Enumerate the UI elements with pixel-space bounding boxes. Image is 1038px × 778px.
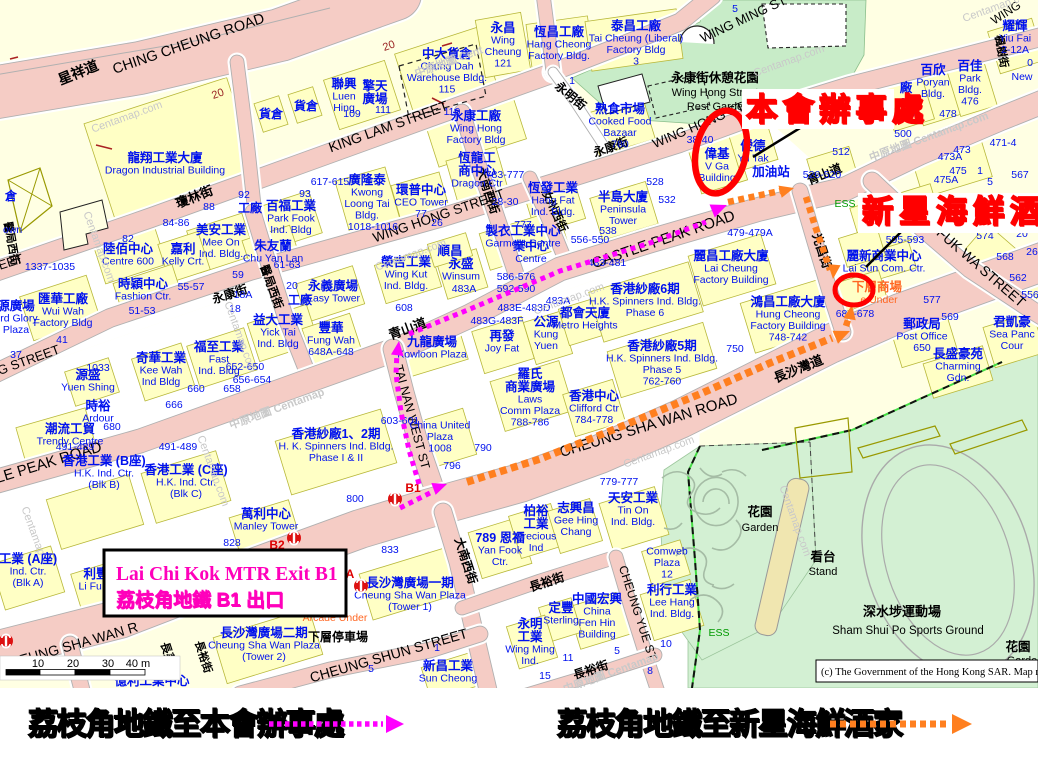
svg-text:H.K. Ind. Ctr.: H.K. Ind. Ctr. (156, 476, 216, 488)
svg-text:3: 3 (633, 55, 639, 67)
svg-text:109: 109 (343, 108, 361, 120)
svg-text:568: 568 (996, 251, 1014, 263)
svg-text:Plaza: Plaza (654, 557, 680, 569)
svg-text:(Blk C): (Blk C) (170, 488, 202, 500)
svg-text:(Blk B): (Blk B) (88, 479, 120, 491)
svg-text:Charming: Charming (935, 360, 981, 372)
svg-text:Ind Bldg: Ind Bldg (142, 376, 181, 388)
svg-text:828: 828 (223, 537, 241, 549)
svg-text:26: 26 (1026, 246, 1038, 258)
svg-text:工業: 工業 (517, 629, 543, 644)
svg-text:商業廣場: 商業廣場 (505, 379, 556, 394)
svg-text:志興昌: 志興昌 (557, 500, 595, 515)
svg-text:Cheung Sha Wan Plaza: Cheung Sha Wan Plaza (208, 639, 320, 651)
svg-text:工業 (A座): 工業 (A座) (0, 551, 57, 566)
svg-text:奇華工業: 奇華工業 (136, 350, 187, 365)
svg-text:朱友蘭: 朱友蘭 (254, 238, 292, 253)
svg-text:(Tower 1): (Tower 1) (388, 601, 432, 613)
svg-text:1033: 1033 (86, 362, 110, 374)
svg-text:Poryan: Poryan (916, 76, 949, 88)
svg-text:15: 15 (539, 670, 551, 682)
svg-text:777: 777 (514, 219, 532, 231)
svg-text:577: 577 (923, 294, 941, 306)
svg-text:512: 512 (832, 146, 850, 158)
svg-text:潮流工貿: 潮流工貿 (45, 421, 96, 436)
svg-text:Cheung Sha Wan Plaza: Cheung Sha Wan Plaza (354, 589, 466, 601)
svg-text:Fung Wah: Fung Wah (307, 334, 355, 346)
svg-text:再發: 再發 (489, 328, 515, 343)
svg-text:看台: 看台 (810, 549, 835, 564)
svg-text:貨倉: 貨倉 (294, 98, 319, 113)
svg-text:時裕: 時裕 (85, 398, 111, 413)
svg-text:473A: 473A (938, 151, 963, 163)
svg-text:H.K. Ind. Ctr.: H.K. Ind. Ctr. (74, 467, 134, 479)
svg-text:586-576: 586-576 (497, 271, 536, 283)
svg-text:貨倉: 貨倉 (259, 106, 284, 121)
svg-text:Wui Wah: Wui Wah (42, 305, 84, 317)
svg-text:Lai Chi Kok MTR Exit B1: Lai Chi Kok MTR Exit B1 (116, 564, 338, 585)
svg-text:483G-483F: 483G-483F (470, 315, 523, 327)
svg-text:Garden: Garden (742, 522, 779, 534)
svg-text:41: 41 (56, 334, 68, 346)
svg-text:Cheung: Cheung (485, 46, 522, 58)
svg-text:Ind. Bldg.: Ind. Bldg. (199, 248, 243, 260)
svg-text:鴻昌工廠大廈: 鴻昌工廠大廈 (750, 294, 826, 309)
svg-text:Sun Cheong: Sun Cheong (419, 672, 478, 684)
svg-text:深水埗運動場: 深水埗運動場 (863, 604, 941, 619)
svg-text:加油站: 加油站 (751, 164, 790, 179)
svg-text:Fashion Ctr.: Fashion Ctr. (115, 290, 172, 302)
svg-text:長盛豪苑: 長盛豪苑 (933, 346, 984, 361)
svg-text:ord Glory: ord Glory (0, 312, 38, 324)
svg-text:Sea Panc: Sea Panc (989, 328, 1035, 340)
svg-text:Gee Hing: Gee Hing (554, 514, 599, 526)
svg-text:Park: Park (959, 72, 981, 84)
svg-text:源廣場: 源廣場 (0, 298, 35, 313)
svg-text:471-4: 471-4 (990, 137, 1017, 149)
svg-text:Tin On: Tin On (617, 504, 648, 516)
svg-text:748-742: 748-742 (769, 331, 808, 343)
svg-text:Ind. Bldg: Ind. Bldg (270, 224, 312, 236)
svg-text:1337-1035: 1337-1035 (25, 261, 75, 273)
svg-text:天安工業: 天安工業 (608, 490, 659, 505)
svg-text:Factory Bldg: Factory Bldg (34, 317, 93, 329)
svg-text:37: 37 (10, 349, 22, 361)
svg-text:538: 538 (599, 225, 617, 237)
svg-text:Precious: Precious (516, 530, 557, 542)
svg-text:5: 5 (614, 645, 620, 657)
svg-text:Wing Kut: Wing Kut (385, 268, 428, 280)
svg-text:中國宏興: 中國宏興 (572, 591, 623, 606)
svg-text:783-777: 783-777 (486, 169, 525, 181)
svg-text:Laws: Laws (518, 393, 543, 405)
svg-text:香港紗廠1、2期: 香港紗廠1、2期 (291, 426, 381, 441)
svg-text:Factory Building: Factory Building (750, 320, 825, 332)
svg-text:8: 8 (647, 665, 653, 677)
svg-text:648A-648: 648A-648 (308, 346, 354, 358)
svg-text:55-57: 55-57 (178, 281, 205, 293)
svg-text:業中心: 業中心 (512, 238, 549, 253)
svg-text:562: 562 (1009, 272, 1027, 284)
svg-text:Stand: Stand (809, 566, 838, 578)
svg-text:Factory Bldg: Factory Bldg (607, 44, 666, 56)
svg-text:New: New (1011, 71, 1032, 83)
svg-text:Ind. Bldg.: Ind. Bldg. (531, 206, 575, 218)
svg-text:Factory Building: Factory Building (693, 274, 768, 286)
svg-text:51-53: 51-53 (129, 305, 156, 317)
svg-text:柏裕: 柏裕 (523, 503, 549, 518)
svg-text:567: 567 (1011, 169, 1029, 181)
svg-text:526-520: 526-520 (803, 169, 842, 181)
svg-text:Comm Plaza: Comm Plaza (500, 405, 560, 417)
svg-text:790: 790 (474, 442, 492, 454)
svg-text:528: 528 (646, 176, 664, 188)
svg-text:定豐: 定豐 (547, 600, 574, 615)
svg-text:(Tower 2): (Tower 2) (242, 651, 286, 663)
svg-text:Cooked Food: Cooked Food (588, 115, 651, 127)
svg-text:長沙灣廣場一期: 長沙灣廣場一期 (366, 575, 454, 590)
svg-text:Cour: Cour (1001, 340, 1024, 352)
svg-text:工廠: 工廠 (238, 200, 263, 215)
svg-text:Lee Hang: Lee Hang (649, 596, 695, 608)
svg-text:廣隆泰: 廣隆泰 (348, 172, 386, 187)
svg-text:Gdn.: Gdn. (947, 372, 970, 384)
svg-text:Ctr.: Ctr. (492, 556, 508, 568)
svg-text:Loong Tai: Loong Tai (344, 198, 389, 210)
svg-text:工業: 工業 (523, 516, 549, 531)
svg-text:龍翔工業大廈: 龍翔工業大廈 (127, 150, 203, 165)
svg-text:784-778: 784-778 (575, 414, 614, 426)
svg-text:Sham Shui Po Sports Ground: Sham Shui Po Sports Ground (832, 625, 984, 637)
svg-text:476: 476 (961, 95, 979, 107)
svg-text:Phase 5: Phase 5 (643, 364, 682, 376)
svg-text:永盛: 永盛 (447, 256, 474, 271)
svg-text:20: 20 (286, 280, 298, 292)
svg-text:5: 5 (732, 3, 738, 15)
svg-text:羅氏: 羅氏 (517, 366, 543, 381)
svg-text:新昌工業: 新昌工業 (423, 658, 474, 673)
svg-text:Sterling: Sterling (543, 614, 579, 626)
svg-text:115: 115 (439, 83, 456, 95)
svg-text:10: 10 (32, 658, 44, 670)
svg-text:Yuen: Yuen (534, 340, 558, 352)
svg-text:香港紗廠6期: 香港紗廠6期 (609, 281, 679, 296)
svg-text:650: 650 (913, 342, 931, 354)
svg-text:下層商場: 下層商場 (852, 279, 903, 294)
svg-text:Chang: Chang (561, 526, 592, 538)
svg-text:China: China (583, 605, 611, 617)
svg-text:Bldg.: Bldg. (355, 209, 379, 221)
svg-text:680: 680 (103, 421, 121, 433)
svg-text:Manley Tower: Manley Tower (234, 520, 299, 532)
svg-text:Yiu Fai: Yiu Fai (999, 32, 1031, 44)
svg-text:800: 800 (346, 493, 364, 505)
svg-text:Ind. Bldg.: Ind. Bldg. (650, 608, 694, 620)
svg-text:556: 556 (1021, 289, 1038, 301)
svg-text:12: 12 (661, 568, 673, 580)
svg-text:CEO Tower: CEO Tower (394, 196, 448, 208)
svg-text:Kwong: Kwong (351, 186, 383, 198)
svg-text:121: 121 (494, 57, 512, 69)
svg-text:時穎中心: 時穎中心 (118, 276, 169, 291)
svg-text:H.K. Spinners Ind. Bldg.: H.K. Spinners Ind. Bldg. (589, 295, 701, 307)
svg-text:Wing: Wing (491, 34, 515, 46)
svg-text:30: 30 (102, 658, 114, 670)
svg-text:61-63: 61-63 (274, 259, 301, 271)
svg-text:ESS: ESS (834, 198, 855, 210)
svg-text:1: 1 (977, 165, 983, 177)
svg-text:779-777: 779-777 (600, 476, 639, 488)
svg-text:百福工業: 百福工業 (266, 198, 317, 213)
svg-text:香港紗廠5期: 香港紗廠5期 (626, 338, 696, 353)
svg-text:Winsum: Winsum (442, 270, 480, 282)
svg-text:18A: 18A (234, 289, 253, 301)
svg-text:0: 0 (1027, 57, 1033, 69)
svg-text:Joy Fat: Joy Fat (485, 342, 520, 354)
svg-text:5: 5 (987, 176, 993, 188)
svg-text:工廠: 工廠 (288, 292, 313, 307)
svg-text:Mee On: Mee On (202, 236, 240, 248)
svg-text:花園: 花園 (747, 504, 772, 519)
svg-text:Plaza: Plaza (427, 431, 453, 443)
svg-text:新星海鮮酒家: 新星海鮮酒家 (863, 195, 1038, 230)
svg-text:own: own (3, 224, 22, 236)
svg-text:88: 88 (203, 201, 215, 213)
svg-text:Ind. Bldg.: Ind. Bldg. (384, 280, 428, 292)
svg-text:ESS: ESS (708, 627, 729, 639)
svg-text:永明: 永明 (516, 616, 542, 631)
svg-text:恆龍工: 恆龍工 (458, 150, 496, 165)
svg-text:V Ga: V Ga (705, 160, 729, 172)
svg-text:780: 780 (611, 138, 629, 150)
svg-text:(Blk A): (Blk A) (13, 577, 44, 589)
svg-text:833: 833 (381, 544, 399, 556)
svg-text:532: 532 (658, 194, 676, 206)
svg-text:利行工業: 利行工業 (647, 582, 698, 597)
svg-text:92: 92 (238, 189, 250, 201)
svg-text:麗昌工廠大廈: 麗昌工廠大廈 (693, 248, 769, 263)
svg-text:恆發工業: 恆發工業 (528, 180, 579, 195)
svg-text:483A: 483A (452, 283, 477, 295)
svg-text:H. K. Spinners Ind. Bldg.: H. K. Spinners Ind. Bldg. (279, 440, 394, 452)
svg-text:Wing Ming: Wing Ming (505, 643, 555, 655)
svg-text:Factory Bldg.: Factory Bldg. (528, 50, 590, 62)
svg-text:Bldg.: Bldg. (958, 84, 982, 96)
svg-text:萬利中心: 萬利中心 (241, 506, 292, 521)
svg-text:762-760: 762-760 (643, 375, 682, 387)
svg-text:Hang Fat: Hang Fat (531, 194, 574, 206)
svg-text:Yick Tai: Yick Tai (260, 326, 296, 338)
svg-text:九龍廣場: 九龍廣場 (406, 334, 458, 349)
svg-text:Centre: Centre (515, 253, 547, 265)
svg-text:Post Office: Post Office (896, 330, 947, 342)
svg-text:Hung Cheong: Hung Cheong (756, 308, 821, 320)
svg-text:(c) The Government of the Hong: (c) The Government of the Hong Kong SAR.… (821, 667, 1038, 678)
svg-text:Easy Tower: Easy Tower (306, 292, 361, 304)
svg-text:Yuen Shing: Yuen Shing (61, 381, 115, 393)
svg-text:Peninsula: Peninsula (600, 203, 646, 215)
svg-text:擎天: 擎天 (362, 78, 388, 93)
svg-text:泰昌工廠: 泰昌工廠 (610, 18, 662, 33)
svg-text:1018-1016: 1018-1016 (348, 221, 398, 233)
svg-text:香港中心: 香港中心 (568, 388, 620, 403)
svg-text:Kee Wah: Kee Wah (140, 364, 183, 376)
svg-text:君凱豪: 君凱豪 (992, 314, 1031, 329)
svg-text:478: 478 (939, 108, 957, 120)
svg-text:Fen Hin: Fen Hin (579, 617, 616, 629)
svg-text:Hang Cheong: Hang Cheong (527, 38, 592, 50)
svg-text:永昌: 永昌 (489, 20, 515, 35)
svg-text:1: 1 (434, 642, 440, 654)
svg-text:491-489: 491-489 (159, 441, 198, 453)
svg-text:20: 20 (67, 658, 79, 670)
svg-text:耀輝: 耀輝 (1001, 18, 1028, 33)
svg-text:聯興: 聯興 (331, 76, 357, 91)
svg-text:11: 11 (563, 652, 574, 664)
svg-text:Ind. Ctr.: Ind. Ctr. (10, 565, 47, 577)
svg-text:下層停車場: 下層停車場 (308, 629, 368, 644)
svg-text:Building: Building (578, 628, 616, 640)
svg-text:111: 111 (375, 104, 391, 116)
svg-text:10: 10 (660, 638, 672, 650)
svg-text:Luen: Luen (332, 90, 356, 102)
svg-text:84-86: 84-86 (163, 217, 190, 229)
svg-text:長沙灣廣場二期: 長沙灣廣場二期 (220, 625, 308, 640)
svg-text:Lai Cheung: Lai Cheung (704, 262, 758, 274)
svg-text:Comweb: Comweb (646, 545, 688, 557)
svg-text:百欣: 百欣 (920, 62, 946, 77)
svg-text:491-489: 491-489 (56, 441, 95, 453)
svg-text:香港工業 (B座): 香港工業 (B座) (61, 453, 145, 468)
svg-text:796: 796 (443, 460, 461, 472)
svg-text:660: 660 (187, 383, 205, 395)
svg-text:Dragon Industrial Building: Dragon Industrial Building (105, 164, 225, 176)
svg-text:永康街休憩花園: 永康街休憩花園 (670, 70, 759, 85)
svg-text:Ind.: Ind. (521, 655, 539, 667)
svg-text:H.K. Spinners Ind. Bldg.: H.K. Spinners Ind. Bldg. (606, 352, 718, 364)
svg-text:Clifford Ctr: Clifford Ctr (569, 402, 619, 414)
svg-text:666: 666 (165, 399, 183, 411)
svg-text:恆昌工廠: 恆昌工廠 (534, 24, 585, 39)
svg-text:Phase 6: Phase 6 (626, 307, 665, 319)
svg-text:Wing Hong: Wing Hong (450, 122, 502, 134)
svg-text:Phase I & II: Phase I & II (309, 452, 363, 464)
svg-text:1: 1 (569, 75, 575, 87)
svg-text:Kowloon Plaza: Kowloon Plaza (397, 348, 467, 360)
svg-text:永義廣場: 永義廣場 (307, 278, 359, 293)
svg-text:82: 82 (122, 233, 134, 245)
svg-text:93: 93 (299, 188, 311, 200)
svg-text:1008: 1008 (428, 442, 452, 454)
svg-text:Tai Cheung (Liberal): Tai Cheung (Liberal) (589, 32, 684, 44)
svg-text:658: 658 (223, 383, 241, 395)
svg-text:嘉利: 嘉利 (169, 241, 195, 256)
svg-text:Factory Bldg: Factory Bldg (447, 134, 506, 146)
svg-text:荔枝角地鐵 B1 出口: 荔枝角地鐵 B1 出口 (117, 589, 285, 612)
svg-text:Ind. Bldg.: Ind. Bldg. (611, 516, 655, 528)
svg-text:環普中心: 環普中心 (396, 182, 447, 197)
svg-text:788-786: 788-786 (511, 416, 550, 428)
svg-text:40 m: 40 m (126, 658, 150, 670)
svg-text:美安工業: 美安工業 (196, 222, 247, 237)
svg-text:77: 77 (415, 208, 427, 220)
svg-text:本會辦事處: 本會辦事處 (747, 93, 930, 128)
svg-text:Yan Fook: Yan Fook (478, 544, 523, 556)
svg-text:Kelly Crt.: Kelly Crt. (162, 255, 205, 267)
svg-text:110: 110 (444, 106, 461, 118)
svg-text:750: 750 (726, 343, 744, 355)
svg-text:百佳: 百佳 (957, 58, 983, 73)
svg-text:59: 59 (232, 269, 244, 281)
svg-text:倉: 倉 (4, 188, 18, 203)
svg-text:花園: 花園 (1005, 639, 1030, 654)
svg-text:Ind. Bldg: Ind. Bldg (257, 338, 299, 350)
svg-text:匯華工廠: 匯華工廠 (38, 291, 89, 306)
svg-text:479-479A: 479-479A (727, 227, 773, 239)
svg-text:Bazaar: Bazaar (603, 127, 637, 139)
svg-text:Ind: Ind (529, 542, 544, 554)
svg-text:2-12A: 2-12A (1001, 44, 1029, 56)
svg-text:郵政局: 郵政局 (903, 316, 941, 331)
svg-text:5: 5 (368, 663, 374, 675)
svg-text:475A: 475A (934, 174, 959, 186)
svg-text:Park Fook: Park Fook (267, 212, 316, 224)
svg-text:569: 569 (941, 311, 959, 323)
svg-text:Metro Heights: Metro Heights (552, 319, 617, 331)
svg-text:半島大廈: 半島大廈 (598, 189, 649, 204)
svg-text:608: 608 (395, 302, 413, 314)
svg-text:熟食市場: 熟食市場 (595, 101, 646, 116)
svg-text:617-615: 617-615 (311, 176, 350, 188)
svg-text:益大工業: 益大工業 (253, 312, 304, 327)
svg-text:Plaza: Plaza (3, 324, 29, 336)
svg-text:豐華: 豐華 (318, 320, 344, 335)
svg-text:26: 26 (431, 217, 443, 229)
svg-text:28-30: 28-30 (492, 196, 519, 208)
svg-text:偉基: 偉基 (704, 146, 730, 161)
